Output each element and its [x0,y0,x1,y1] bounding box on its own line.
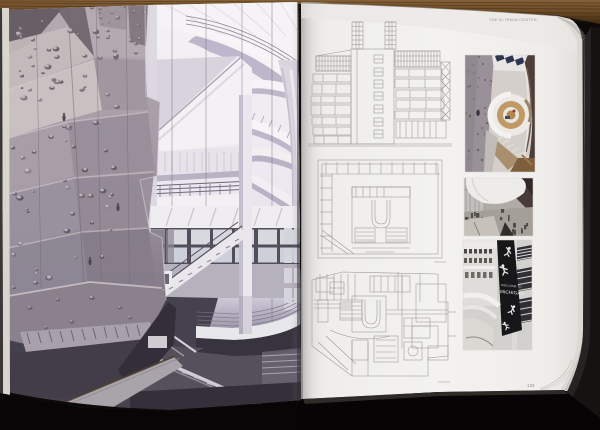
svg-text:THE AL IRWIN CENTER: THE AL IRWIN CENTER [489,17,537,22]
svg-text:133: 133 [527,383,535,388]
